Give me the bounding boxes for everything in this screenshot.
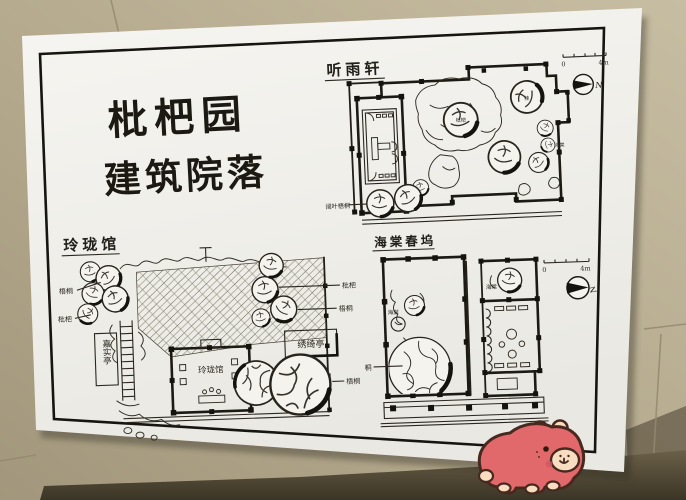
plan-title: 听雨轩 — [326, 59, 384, 79]
north-label: N — [594, 81, 603, 90]
capybara-hind-paw — [479, 470, 493, 482]
label-pipa-left: 枇杷 — [58, 314, 72, 323]
scale-zero: 0 — [561, 60, 565, 68]
capybara-freckle-2 — [538, 456, 540, 458]
capybara-eye — [543, 446, 549, 452]
label-wutong-right: 梧桐 — [339, 304, 353, 313]
photo-of-plan-drawing: 枇杷园 建筑院落 听雨轩 0 4m N — [0, 0, 686, 500]
capybara-paw-2 — [526, 485, 539, 494]
plan-title: 海棠春坞 — [374, 233, 437, 250]
label-pipa-right: 枇杷 — [342, 281, 356, 290]
scale-zero: 0 — [542, 266, 546, 274]
hall-label: 玲珑馆 — [198, 364, 224, 376]
title-line2: 建筑院落 — [103, 149, 269, 202]
scale-max: 4m — [598, 58, 609, 66]
label-wutong-bottom: 梧桐 — [346, 376, 360, 385]
title-line1: 枇杷园 — [106, 90, 249, 144]
xiuqi-pavilion-label: 绣绮亭 — [297, 338, 324, 351]
label-wutong-left: 梧桐 — [59, 286, 73, 295]
tree-label-gui: 桂 — [524, 95, 529, 102]
label-broadleaf-wutong: 阔叶梧桐 — [325, 202, 350, 211]
capybara-paw-3 — [547, 482, 560, 491]
scale-max: 4m — [580, 264, 591, 272]
capybara-paw-1 — [498, 484, 511, 493]
capybara-freckle-1 — [536, 451, 538, 453]
plan-title: 玲珑馆 — [63, 235, 121, 255]
capybara-muzzle — [551, 449, 579, 472]
capybara-blush — [546, 461, 553, 468]
label-tong: 桐 — [364, 363, 371, 372]
small-tree — [404, 295, 425, 316]
tree-label-pipa: 枇杷 — [456, 117, 466, 124]
leader-line — [348, 204, 366, 205]
jiashi-pavilion-label: 嘉实亭 — [101, 339, 112, 365]
